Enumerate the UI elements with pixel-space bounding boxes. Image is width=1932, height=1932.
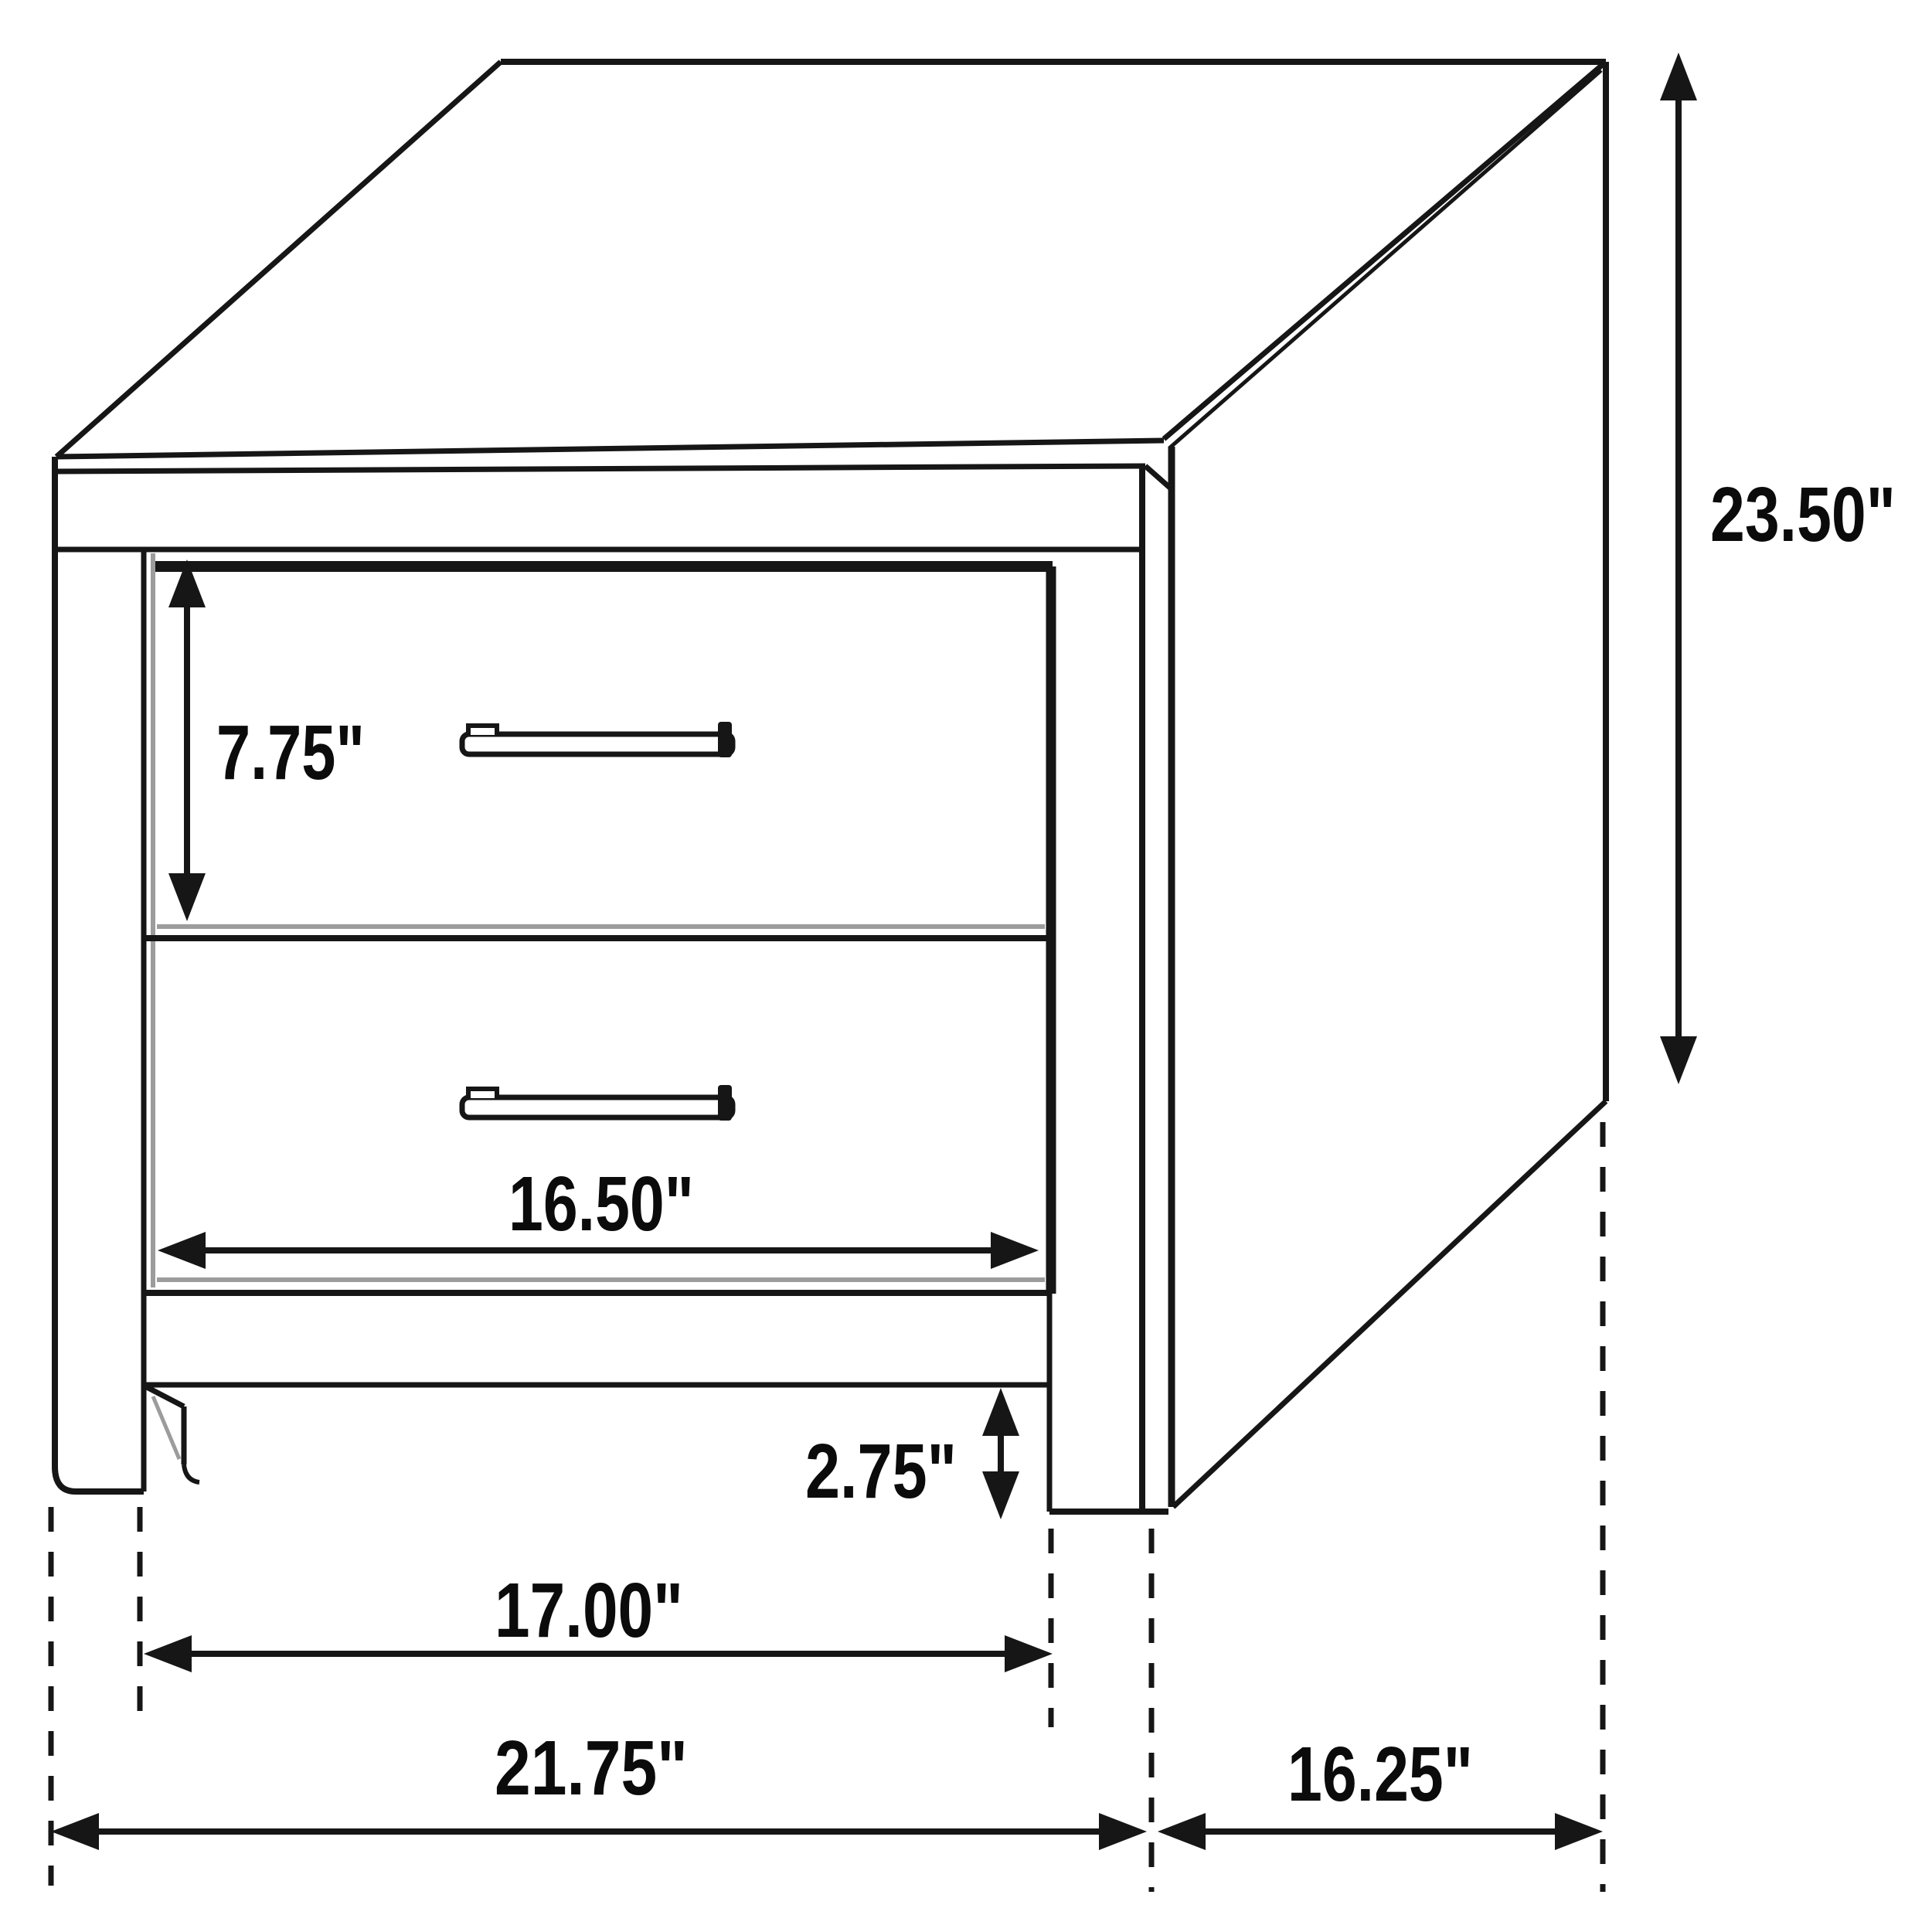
dim-drawer-width-arrow-right [991, 1232, 1039, 1269]
top-right-edge-inner [1169, 70, 1601, 448]
drawer-1-handle [462, 722, 733, 757]
dim-between-legs-arrow-right [1005, 1635, 1053, 1672]
top-left-edge [56, 62, 501, 457]
rear-leg-foot-curve [184, 1464, 199, 1482]
dim-foot-clearance-arrow-down [982, 1471, 1019, 1519]
dim-overall-height-label: 23.50" [1710, 471, 1896, 558]
side-panel [1172, 62, 1606, 1507]
drawer-2-handle-left-tab [468, 1089, 497, 1098]
nightstand-dimension-diagram: 7.75" 23.50" 16.50" 2.75" 17.00" 21.75" [0, 0, 1932, 1932]
dim-foot-clearance-arrow-up [982, 1388, 1019, 1436]
drawer-1-handle-right-cap [718, 722, 732, 757]
drawer-1-handle-left-tab [468, 726, 497, 735]
top-front-corner-chamfer [1145, 466, 1172, 489]
drawer-1-handle-bar [462, 734, 733, 754]
side-panel-bottom-edge [1173, 1101, 1606, 1507]
top-surface [56, 62, 1606, 489]
left-stile-and-foot [55, 457, 144, 1492]
top-right-edge-outer [1164, 62, 1606, 439]
front-frame [55, 457, 1168, 1512]
dim-between-legs-width: 17.00" [144, 1567, 1053, 1672]
dim-drawer-height: 7.75" [168, 560, 365, 921]
dim-between-legs-arrow-left [144, 1635, 192, 1672]
drawer-2-handle-bar [462, 1097, 733, 1117]
dim-foot-clearance-label: 2.75" [805, 1428, 957, 1515]
dim-overall-width-arrow-right [1099, 1813, 1147, 1850]
dim-overall-height-arrow-down [1660, 1036, 1697, 1084]
dim-overall-depth: 16.25" [1158, 1731, 1603, 1850]
dim-drawer-width-label: 16.50" [509, 1161, 694, 1247]
dim-drawer-height-arrow-down [168, 873, 206, 921]
dim-overall-depth-arrow-right [1555, 1813, 1603, 1850]
dim-between-legs-label: 17.00" [495, 1567, 683, 1654]
dim-drawer-width: 16.50" [158, 1161, 1039, 1269]
dim-overall-depth-arrow-left [1158, 1813, 1206, 1850]
rear-leg-shadow [153, 1396, 179, 1459]
dim-overall-height-arrow-up [1660, 53, 1697, 100]
dim-overall-width: 21.75" [51, 1725, 1147, 1850]
drawer-2-handle [462, 1085, 733, 1121]
dim-overall-width-label: 21.75" [495, 1725, 688, 1811]
dim-foot-clearance: 2.75" [805, 1388, 1019, 1519]
dimension-diagram-page: 7.75" 23.50" 16.50" 2.75" 17.00" 21.75" [0, 0, 1932, 1932]
dim-overall-depth-label: 16.25" [1287, 1731, 1473, 1818]
drawer-2-handle-right-cap [718, 1085, 732, 1121]
dim-overall-width-arrow-left [51, 1813, 99, 1850]
top-front-edge-upper [56, 440, 1164, 457]
dim-drawer-height-label: 7.75" [216, 709, 365, 796]
top-front-edge-lower [58, 466, 1145, 471]
dim-drawer-width-arrow-left [158, 1232, 206, 1269]
dim-overall-height: 23.50" [1660, 53, 1896, 1084]
